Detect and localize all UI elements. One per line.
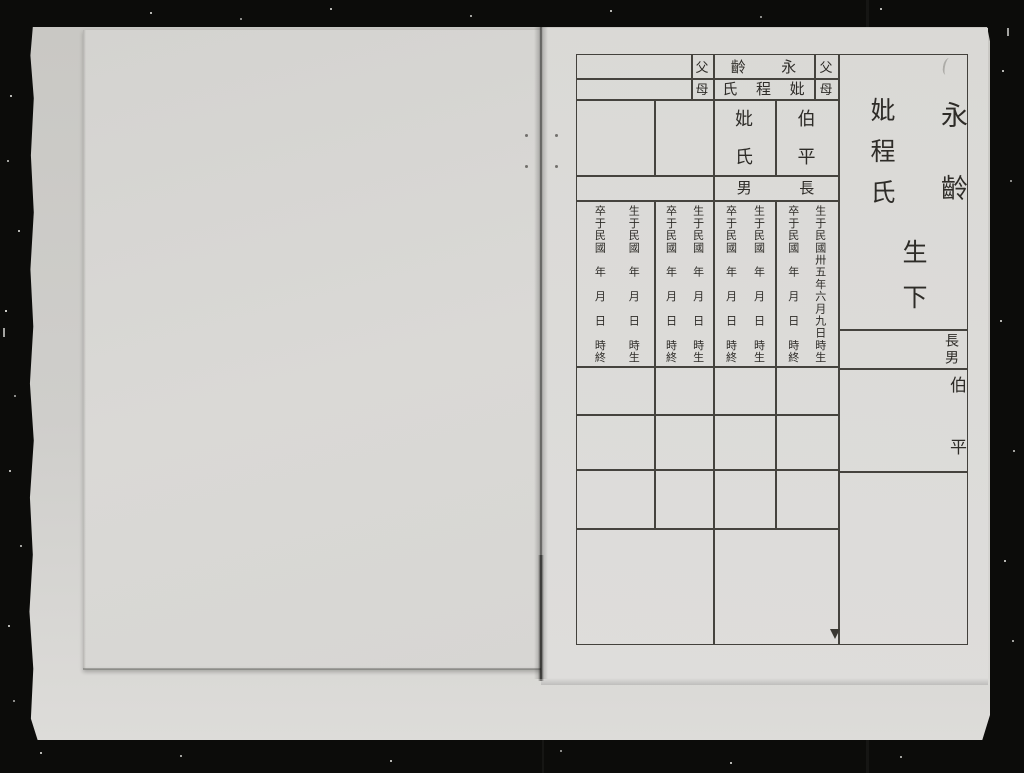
death-date-column: 卒于民國 年 月 日 時終 (663, 205, 678, 364)
film-scratch (1007, 28, 1009, 36)
mother-name-char: 氏 (722, 78, 737, 99)
binding-dot (525, 134, 528, 137)
death-date-column: 卒于民國 年 月 日 時終 (724, 205, 739, 364)
grid-line (577, 366, 838, 368)
book-gutter-shadow (538, 555, 544, 681)
left-page-bottom-edge (83, 668, 541, 670)
birth-date-column-filled: 生于民國卅五年六月九日時生 (813, 205, 828, 364)
grid-line (577, 414, 838, 416)
grid-line (838, 368, 967, 370)
ink-smudge (942, 57, 954, 75)
father-name-char: 齡 (731, 56, 746, 77)
mother-label-left: 母 (691, 78, 713, 99)
mother-name-char: 程 (756, 78, 771, 99)
father-name-char: 永 (781, 56, 796, 77)
binding-dot (525, 165, 528, 168)
binding-dot (555, 134, 558, 137)
father-name-cell: 永 齡 (713, 55, 814, 78)
grid-line (577, 528, 838, 530)
margin-name-inscription: 永齡 (932, 101, 971, 247)
birth-date-column: 生于民國 年 月 日 時生 (691, 205, 706, 364)
margin-mother-inscription: 妣程氏 (863, 97, 899, 220)
film-speckles (0, 0, 2, 2)
microfilm-photo: 父 永 齡 父 母 妣 程 氏 母 妣 氏 伯 平 長 男 卒于民國 年 (0, 0, 1024, 773)
father-label-right: 父 (814, 55, 838, 78)
mother-surname-char: 氏 (735, 143, 753, 169)
date-pair-cell: 卒于民國 年 月 日 時終 生于民國 年 月 日 時生 (577, 200, 654, 366)
death-date-column: 卒于民國 年 月 日 時終 (786, 205, 801, 364)
left-page-blank (83, 30, 541, 669)
right-page-bottom-edge (541, 678, 988, 685)
genealogy-register-table: 父 永 齡 父 母 妣 程 氏 母 妣 氏 伯 平 長 男 卒于民國 年 (576, 54, 968, 645)
arrow-mark (830, 629, 840, 639)
date-pair-cell: 卒于民國 年 月 日 時終 生于民國 年 月 日 時生 (713, 200, 775, 366)
date-pair-cell: 卒于民國 年 月 日 時終 生于民國卅五年六月九日時生 (775, 200, 838, 366)
grid-line (654, 99, 656, 175)
son-name-char: 平 (798, 143, 816, 169)
date-pair-cell: 卒于民國 年 月 日 時終 生于民國 年 月 日 時生 (654, 200, 713, 366)
mother-name-cell: 妣 程 氏 (713, 78, 814, 99)
birth-date-column: 生于民國 年 月 日 時生 (626, 205, 641, 364)
father-label-left: 父 (691, 55, 713, 78)
mother-surname-char: 妣 (735, 105, 753, 131)
son-name-char: 伯 (798, 105, 816, 131)
mother-surname-cell: 妣 氏 (713, 99, 775, 175)
mother-label-right: 母 (814, 78, 838, 99)
margin-son-name: 伯平 (944, 376, 969, 500)
death-date-column: 卒于民國 年 月 日 時終 (592, 205, 607, 364)
mother-name-char: 妣 (790, 78, 805, 99)
margin-birth-note: 生下 (895, 239, 931, 329)
birth-date-column: 生于民國 年 月 日 時生 (751, 205, 766, 364)
page-crease (83, 30, 86, 669)
grid-line (838, 55, 840, 644)
eldest-son-header-cell: 長 男 (713, 175, 838, 200)
grid-line (577, 469, 838, 471)
grid-line (838, 329, 967, 331)
film-scratch (3, 328, 5, 337)
son-name-cell: 伯 平 (775, 99, 838, 175)
eldest-son-header-char: 男 (737, 177, 752, 198)
margin-eldest-son-label: 長男 (941, 333, 961, 367)
binding-dot (555, 165, 558, 168)
eldest-son-header-char: 長 (799, 177, 814, 198)
